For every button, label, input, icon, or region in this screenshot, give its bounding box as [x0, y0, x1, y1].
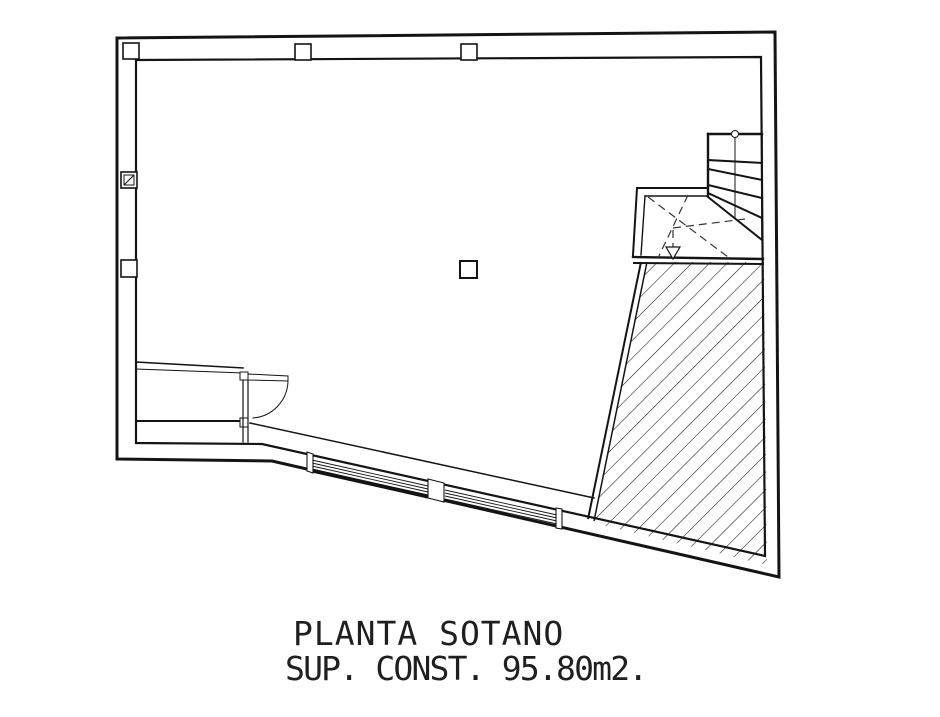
door-leaf: [248, 374, 288, 381]
room-top-wall: [136, 362, 243, 368]
drawing-sheet: PLANTA SOTANO SUP. CONST. 95.80m2.: [0, 0, 940, 717]
plan-title: PLANTA SOTANO: [293, 617, 564, 650]
room-top-wall: [136, 369, 243, 373]
door-jamb: [240, 418, 248, 427]
column-marker: [123, 43, 139, 59]
window-jamb: [307, 452, 313, 473]
top-wall-columns: [123, 43, 477, 60]
center-column: [460, 261, 477, 278]
storage-room: [136, 362, 288, 442]
door-swing-arc: [253, 381, 288, 418]
column-marker: [461, 44, 477, 60]
window-mullion: [428, 479, 444, 502]
column-marker: [121, 260, 137, 277]
landing-bottom-edge: [634, 263, 763, 264]
plan-area-label: SUP. CONST. 95.80m2.: [285, 652, 646, 685]
floor-plan-canvas: [0, 0, 940, 717]
ramp-hatch: [594, 262, 767, 565]
door-jamb: [240, 372, 248, 380]
window-sill-line: [308, 471, 428, 498]
walk-line-start-circle: [732, 131, 739, 138]
column-marker: [295, 44, 311, 60]
window-jamb: [556, 508, 562, 529]
ramp: [588, 262, 767, 565]
window-sill-line: [445, 501, 561, 527]
interior-face-line: [250, 423, 594, 498]
landing-bottom-edge: [633, 257, 763, 259]
left-wall-markers: [121, 172, 137, 277]
stair-flight: [708, 131, 762, 241]
basement-window-2: [445, 490, 561, 527]
